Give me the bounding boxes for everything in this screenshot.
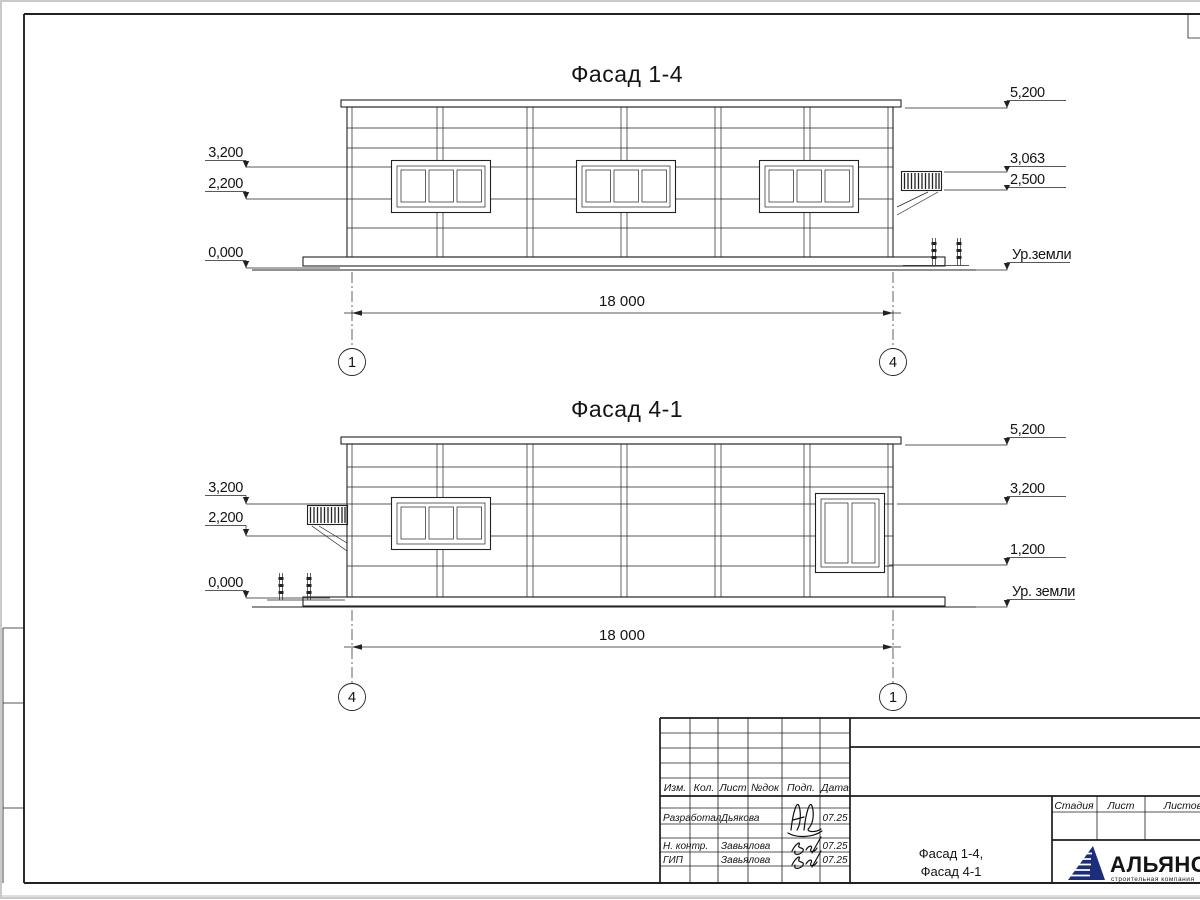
col-stadia: Стадия xyxy=(1054,800,1094,812)
facade-1-building xyxy=(252,100,976,270)
railing-post xyxy=(307,573,312,600)
window-3pane xyxy=(392,498,491,550)
row-date: 07.25 xyxy=(822,855,847,866)
col-ndok: №док xyxy=(751,782,780,794)
row-name: Завьялова xyxy=(721,855,771,866)
col-data: Дата xyxy=(820,782,849,794)
elevation-value: 2,200 xyxy=(208,176,243,192)
elevation-mark: 1,200 xyxy=(889,542,1066,565)
axis-bubble-left: 4 xyxy=(339,684,366,711)
col-podp: Подп. xyxy=(787,782,815,794)
elevation-value: 0,000 xyxy=(208,575,243,591)
doc-title-line1: Фасад 1-4, xyxy=(919,846,983,861)
window-3pane xyxy=(577,161,676,213)
axis-bubble-left: 1 xyxy=(339,349,366,376)
col-kol: Кол. xyxy=(694,782,715,794)
facade-2-title: Фасад 4-1 xyxy=(571,396,683,422)
elevation-mark: 2,200 xyxy=(205,176,347,199)
col-listov: Листов xyxy=(1163,800,1200,812)
railing-post xyxy=(957,238,962,265)
ground-label: Ур. земли xyxy=(1012,584,1075,600)
row-date: 07.25 xyxy=(822,841,847,852)
elevation-value: 5,200 xyxy=(1010,85,1045,101)
row-name: Завьялова xyxy=(721,841,771,852)
elevation-value: 3,200 xyxy=(208,145,243,161)
entrance-canopy xyxy=(308,506,348,525)
facade-1-dimension: 18 000 1 4 xyxy=(339,272,907,376)
col-list: Лист xyxy=(718,782,746,794)
elevation-value: 3,200 xyxy=(208,480,243,496)
railing-post xyxy=(279,573,284,600)
doc-title-line2: Фасад 4-1 xyxy=(921,864,982,879)
company-logo: АЛЬЯНС строительная компания xyxy=(1068,846,1200,883)
ground-level-mark: Ур. земли xyxy=(968,584,1075,607)
facade-1-elevation-marks-right: 5,200 3,063 2,500 Ур.земли xyxy=(905,85,1072,270)
axis-bubble-right: 4 xyxy=(880,349,907,376)
elevation-value: 0,000 xyxy=(208,245,243,261)
elevation-value: 1,200 xyxy=(1010,542,1045,558)
elevation-value: 2,200 xyxy=(208,510,243,526)
axis-number: 4 xyxy=(889,355,897,371)
elevation-mark: 5,200 xyxy=(905,422,1066,445)
row-role: ГИП xyxy=(663,855,684,866)
elevation-mark: 3,063 xyxy=(944,151,1066,172)
facade-2-elevation-marks-right: 5,200 3,200 1,200 Ур. земли xyxy=(889,422,1075,607)
elevation-value: 2,500 xyxy=(1010,172,1045,188)
axis-number: 1 xyxy=(889,690,897,706)
title-block: Изм. Кол. Лист №док Подп. Дата Разработа… xyxy=(660,718,1200,883)
elevation-mark: 3,200 xyxy=(205,480,347,504)
col-list2: Лист xyxy=(1106,800,1134,812)
row-role: Разработал xyxy=(663,812,722,824)
facade-2-building xyxy=(252,437,976,607)
logo-name: АЛЬЯНС xyxy=(1110,852,1200,877)
overall-dimension: 18 000 xyxy=(599,293,645,310)
elevation-mark: 2,200 xyxy=(205,510,347,536)
window-2pane-tall xyxy=(816,494,885,573)
sheet-frame xyxy=(3,14,1200,883)
elevation-mark: 2,500 xyxy=(944,172,1066,191)
row-role: Н. контр. xyxy=(663,841,708,852)
page-edges xyxy=(0,0,1200,898)
entrance-canopy xyxy=(902,172,942,191)
facade-drawing-svg: Фасад 1-4 3,200 2,200 xyxy=(0,0,1200,900)
revision-header-row: Изм. Кол. Лист №док Подп. Дата xyxy=(664,782,849,794)
railing-post xyxy=(932,238,937,265)
facade-1-elevation-marks-left: 3,200 2,200 0,000 xyxy=(205,145,347,268)
facade-4-1: Фасад 4-1 3,200 2,200 xyxy=(205,396,1075,711)
facade-2-dimension: 18 000 4 1 xyxy=(339,610,907,711)
window-3pane xyxy=(760,161,859,213)
axis-number: 1 xyxy=(348,355,356,371)
elevation-mark: 3,200 xyxy=(205,145,347,168)
facade-1-4: Фасад 1-4 3,200 2,200 xyxy=(205,61,1072,376)
elevation-value: 5,200 xyxy=(1010,422,1045,438)
elevation-value: 3,063 xyxy=(1010,151,1045,167)
ground-label: Ур.земли xyxy=(1012,247,1072,263)
row-name: Дьякова xyxy=(720,813,760,824)
col-izm: Изм. xyxy=(664,782,686,794)
stage-header-row: Стадия Лист Листов xyxy=(1054,800,1200,812)
signature-scribble xyxy=(788,804,822,836)
doc-title-cell: Фасад 1-4, Фасад 4-1 xyxy=(919,846,983,879)
elevation-mark: 5,200 xyxy=(905,85,1066,108)
facade-2-elevation-marks-left: 3,200 2,200 0,000 xyxy=(205,480,347,598)
row-date: 07.25 xyxy=(822,813,847,824)
facade-1-title: Фасад 1-4 xyxy=(571,61,683,87)
ground-level-mark: Ур.земли xyxy=(968,247,1072,270)
drawing-sheet: Фасад 1-4 3,200 2,200 xyxy=(0,0,1200,900)
elevation-value: 3,200 xyxy=(1010,481,1045,497)
logo-subtitle: строительная компания xyxy=(1111,876,1195,883)
window-3pane xyxy=(392,161,491,213)
overall-dimension: 18 000 xyxy=(599,627,645,644)
axis-number: 4 xyxy=(348,690,356,706)
axis-bubble-right: 1 xyxy=(880,684,907,711)
elevation-mark: 3,200 xyxy=(897,481,1066,504)
